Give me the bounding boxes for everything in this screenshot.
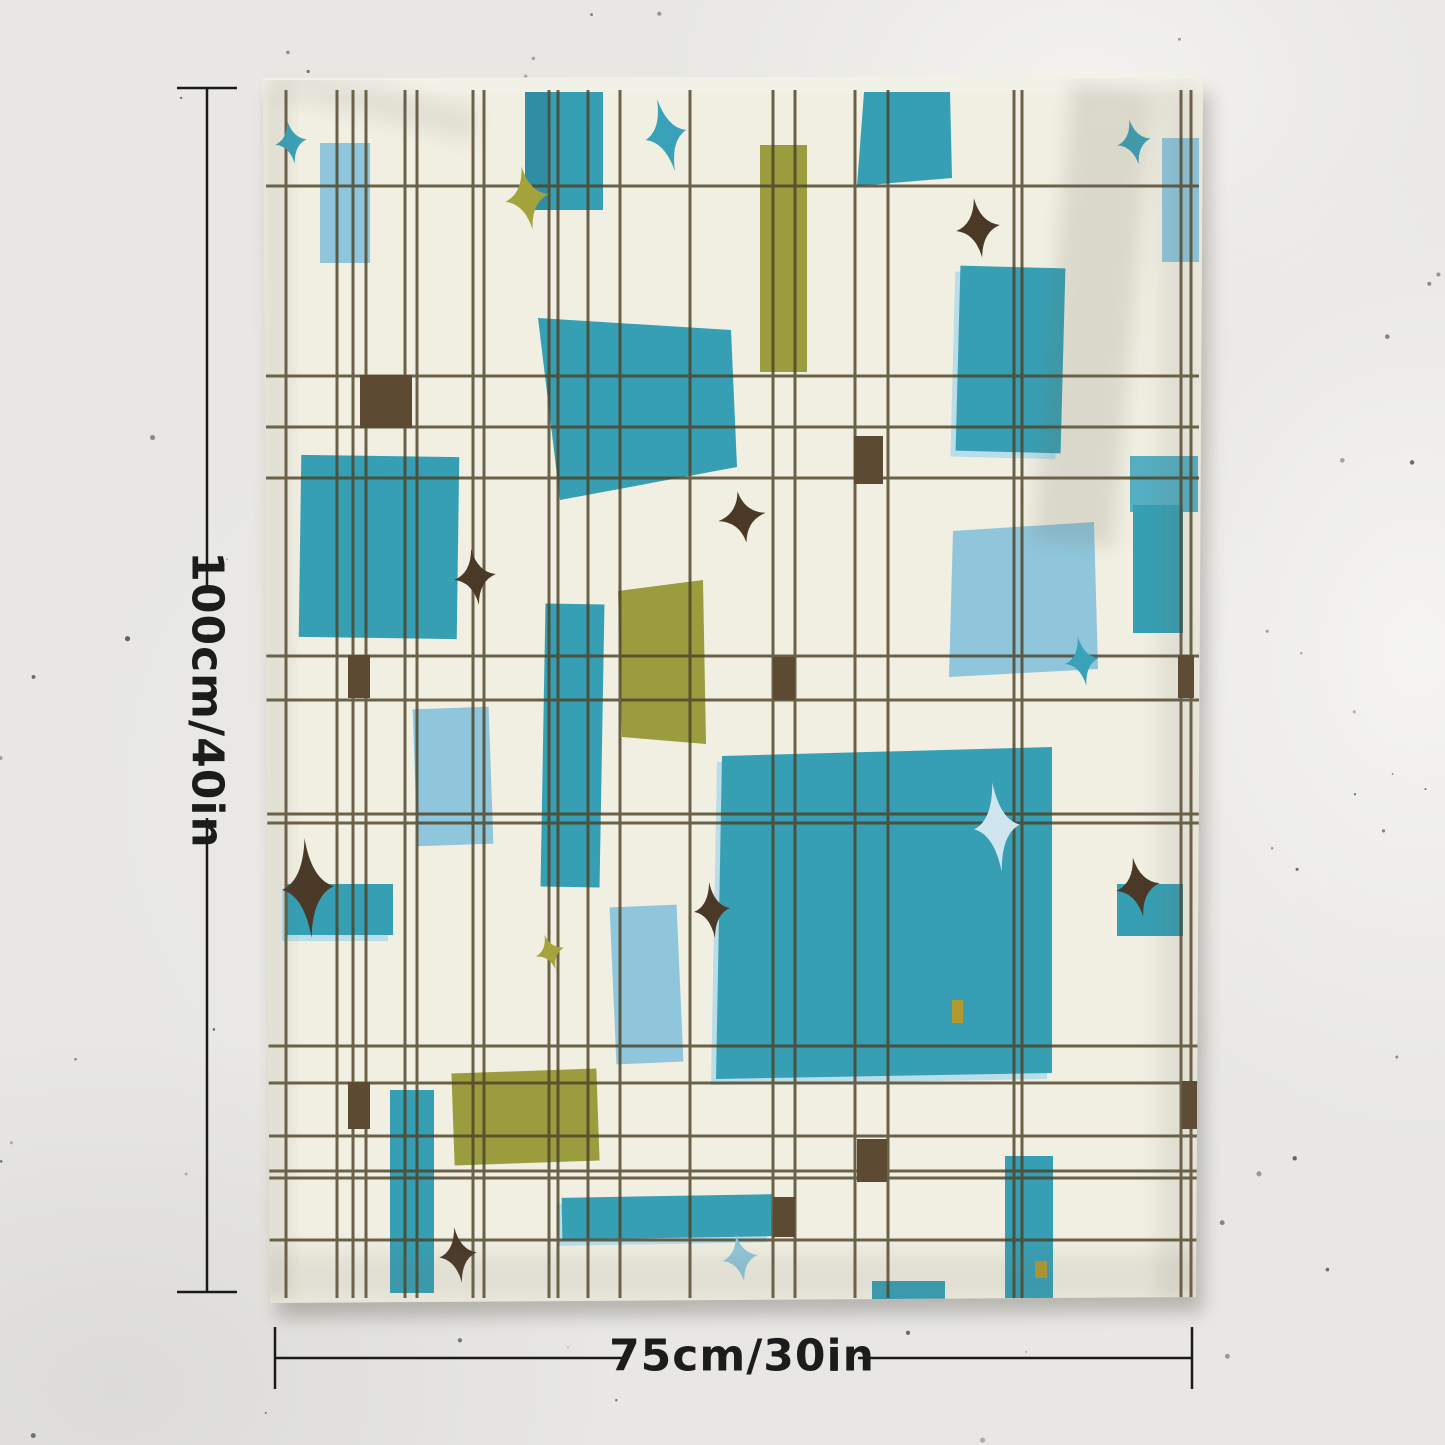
pattern-block — [618, 580, 706, 744]
wall-speck — [1271, 847, 1274, 850]
page: { "product": { "description": "Mid-centu… — [0, 0, 1445, 1445]
wall-speck — [1296, 868, 1299, 871]
pattern-block — [857, 92, 952, 186]
pattern-block — [413, 707, 494, 847]
wall-speck — [1266, 630, 1269, 633]
wall-speck — [150, 435, 155, 440]
wall-speck — [1300, 652, 1302, 654]
wall-speck — [185, 1172, 188, 1175]
wall-speck — [31, 1433, 36, 1438]
wall-speck — [657, 12, 661, 16]
pattern-block — [716, 747, 1052, 1079]
wall-speck — [1354, 793, 1356, 795]
wall-speck — [1427, 282, 1431, 286]
wall-speck — [1382, 829, 1385, 832]
wall-speck — [307, 70, 310, 73]
wall-speck — [213, 1028, 216, 1031]
wall-speck — [180, 97, 182, 99]
width-dimension-label: 75cm/30in — [609, 1331, 875, 1382]
wall-speck — [1225, 1354, 1230, 1359]
pattern-block — [320, 143, 370, 263]
pattern-brown-square — [773, 657, 795, 700]
wall-speck — [1436, 272, 1440, 276]
wall-speck — [532, 57, 536, 61]
wall-speck — [32, 675, 36, 679]
wall-speck — [1410, 460, 1414, 464]
wall-speck — [1293, 1156, 1297, 1160]
wall-speck — [1395, 1055, 1398, 1058]
wall-speck — [1340, 458, 1345, 463]
wall-speck — [1353, 710, 1356, 713]
wall-speck — [1220, 1220, 1225, 1225]
wall-speck — [0, 756, 3, 760]
wall-speck — [1385, 334, 1390, 339]
pattern-block — [299, 455, 460, 639]
wall-speck — [1256, 1171, 1261, 1176]
wall-speck — [1392, 773, 1394, 775]
pattern-brown-square — [773, 1197, 795, 1237]
height-dimension-label: 100cm/40in — [182, 551, 233, 848]
pattern-brown-square — [348, 655, 370, 698]
wall-speck — [458, 1338, 462, 1342]
wall-speck — [74, 1058, 77, 1061]
pattern-brown-square — [360, 375, 412, 428]
wall-speck — [590, 13, 593, 16]
wall-speck — [615, 1399, 618, 1402]
fabric-fold-shadow — [1158, 85, 1200, 1300]
wall-speck — [567, 1346, 569, 1348]
wall-speck — [980, 1438, 985, 1443]
pattern-accent-square — [952, 1000, 963, 1023]
wall-speck — [906, 1331, 910, 1335]
pattern-brown-square — [857, 1139, 887, 1182]
wall-speck — [1326, 1268, 1330, 1272]
pattern-brown-square — [854, 436, 883, 484]
pattern-block — [760, 145, 807, 372]
wall-speck — [1425, 788, 1427, 790]
wall-speck — [10, 1141, 13, 1144]
wall-speck — [1025, 1351, 1027, 1353]
wall-speck — [1178, 38, 1181, 41]
fabric-fold-shadow — [263, 85, 289, 1300]
wall-speck — [286, 51, 290, 55]
wall-speck — [0, 1160, 2, 1163]
wall-speck — [125, 636, 130, 641]
pattern-brown-square — [348, 1082, 370, 1129]
pattern-block — [562, 1194, 773, 1240]
wall-speck — [265, 1412, 267, 1414]
fabric-fold-shadow — [263, 1252, 1203, 1302]
